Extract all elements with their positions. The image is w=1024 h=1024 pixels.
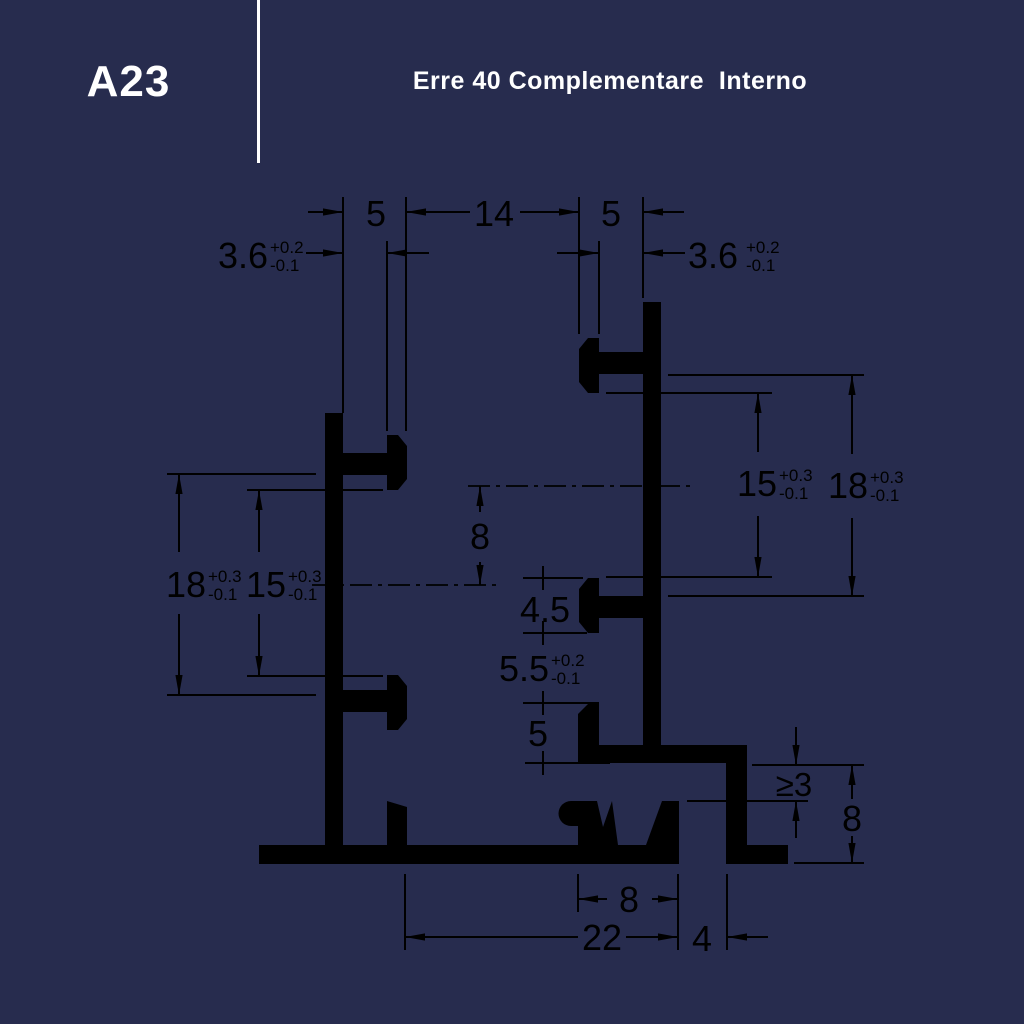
profile-code: A23 — [0, 0, 257, 163]
page-title: Erre 40 Complementare Interno — [300, 0, 920, 163]
drawing-area-background — [6, 163, 1017, 1017]
title-bar: A23 Erre 40 Complementare Interno — [0, 0, 1024, 163]
title-bar-divider — [257, 0, 260, 163]
catalog-page: 5 14 5 3.6 +0.2 -0.1 3.6 +0.2 -0.1 18 +0… — [0, 0, 1024, 1024]
